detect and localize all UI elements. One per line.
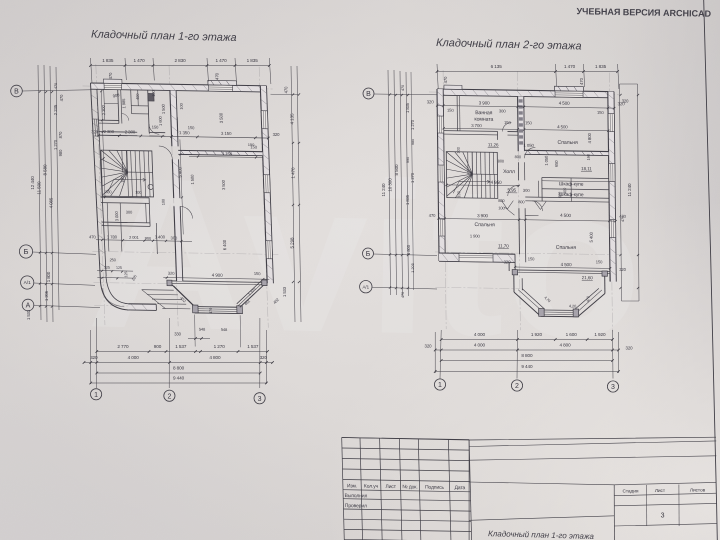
svg-text:6 400: 6 400 xyxy=(222,239,227,250)
svg-text:1 600: 1 600 xyxy=(158,115,163,126)
svg-text:4 000: 4 000 xyxy=(128,355,140,360)
svg-text:320: 320 xyxy=(622,99,629,104)
svg-text:470: 470 xyxy=(108,72,113,79)
svg-text:150: 150 xyxy=(528,256,535,261)
svg-text:470: 470 xyxy=(579,77,584,84)
svg-text:Спальня: Спальня xyxy=(556,245,577,251)
svg-text:990: 990 xyxy=(405,156,410,163)
svg-text:548: 548 xyxy=(221,327,228,332)
svg-text:3: 3 xyxy=(661,513,665,520)
svg-text:3 700: 3 700 xyxy=(471,123,482,128)
svg-text:1 920: 1 920 xyxy=(531,332,543,337)
svg-text:150: 150 xyxy=(597,110,604,115)
svg-text:комната: комната xyxy=(474,117,493,123)
svg-text:3 150: 3 150 xyxy=(221,131,232,136)
svg-text:Б: Б xyxy=(366,251,371,258)
svg-text:5 400: 5 400 xyxy=(177,166,182,177)
svg-text:650: 650 xyxy=(554,160,559,167)
svg-text:1 205: 1 205 xyxy=(410,262,415,272)
svg-text:100: 100 xyxy=(456,146,461,153)
svg-text:1 920: 1 920 xyxy=(594,332,606,337)
svg-text:300: 300 xyxy=(170,235,178,240)
svg-text:800: 800 xyxy=(515,154,522,159)
svg-text:4 500: 4 500 xyxy=(557,124,568,129)
svg-text:125: 125 xyxy=(104,266,110,270)
svg-text:18,11: 18,11 xyxy=(581,166,592,171)
svg-text:100: 100 xyxy=(498,205,505,210)
svg-text:320: 320 xyxy=(168,271,176,276)
svg-text:320: 320 xyxy=(626,346,634,351)
svg-text:Выполнил: Выполнил xyxy=(345,493,368,499)
svg-text:470: 470 xyxy=(400,84,405,91)
svg-text:300: 300 xyxy=(105,189,112,194)
svg-text:548: 548 xyxy=(199,327,206,332)
svg-text:6 135: 6 135 xyxy=(491,64,503,69)
svg-text:Шкаф-купе: Шкаф-купе xyxy=(559,181,584,187)
svg-text:1 835: 1 835 xyxy=(102,58,114,63)
svg-text:1 270: 1 270 xyxy=(214,344,226,349)
svg-text:100: 100 xyxy=(456,190,461,197)
svg-text:320: 320 xyxy=(273,132,281,137)
svg-text:330: 330 xyxy=(174,331,181,336)
svg-text:1 537: 1 537 xyxy=(247,344,259,349)
svg-text:5 298: 5 298 xyxy=(290,237,295,248)
svg-text:470: 470 xyxy=(209,308,213,314)
svg-text:150: 150 xyxy=(188,125,196,130)
svg-text:8 500: 8 500 xyxy=(394,164,399,175)
svg-text:4 800: 4 800 xyxy=(587,132,592,143)
svg-text:9 440: 9 440 xyxy=(173,375,185,380)
svg-text:100: 100 xyxy=(120,175,125,182)
svg-text:Стадия: Стадия xyxy=(622,489,638,495)
svg-text:900: 900 xyxy=(154,344,162,349)
svg-text:№ док.: № док. xyxy=(402,484,417,490)
svg-text:2 001: 2 001 xyxy=(129,235,140,240)
svg-text:2 300: 2 300 xyxy=(101,104,106,115)
svg-text:3 150: 3 150 xyxy=(222,151,233,156)
svg-text:Проверил: Проверил xyxy=(345,503,367,509)
svg-text:160: 160 xyxy=(586,153,591,160)
svg-text:8 800: 8 800 xyxy=(173,366,185,371)
svg-text:125: 125 xyxy=(124,271,128,277)
svg-text:150: 150 xyxy=(504,120,511,125)
svg-text:Лист: Лист xyxy=(385,484,396,490)
svg-text:9 440: 9 440 xyxy=(521,364,533,369)
svg-text:150: 150 xyxy=(596,259,603,264)
svg-text:В: В xyxy=(14,89,19,96)
svg-text:В: В xyxy=(366,91,371,98)
svg-text:2 235: 2 235 xyxy=(53,104,58,115)
svg-text:3: 3 xyxy=(611,384,615,391)
svg-text:12 440: 12 440 xyxy=(30,176,35,190)
svg-text:470: 470 xyxy=(585,295,590,302)
svg-text:4 900: 4 900 xyxy=(212,273,224,278)
svg-text:2: 2 xyxy=(167,393,171,400)
svg-text:Кладочный план 1-го этажа: Кладочный план 1-го этажа xyxy=(488,529,595,540)
svg-text:320: 320 xyxy=(427,99,435,104)
svg-text:1 800: 1 800 xyxy=(46,271,51,282)
svg-text:470: 470 xyxy=(443,76,448,83)
svg-text:4 800: 4 800 xyxy=(559,343,571,348)
svg-text:100: 100 xyxy=(179,102,184,109)
svg-text:1 600: 1 600 xyxy=(566,332,578,337)
svg-text:4 500: 4 500 xyxy=(559,101,571,106)
svg-text:125: 125 xyxy=(116,266,122,270)
svg-text:4 950: 4 950 xyxy=(491,180,503,185)
svg-text:1 800: 1 800 xyxy=(406,244,411,255)
svg-text:470: 470 xyxy=(400,291,405,298)
svg-text:470: 470 xyxy=(59,94,64,101)
svg-text:1 270: 1 270 xyxy=(410,119,415,130)
svg-text:А/1: А/1 xyxy=(24,280,32,286)
svg-text:А/1: А/1 xyxy=(363,284,370,289)
svg-text:1 050: 1 050 xyxy=(523,143,534,148)
svg-text:1 470: 1 470 xyxy=(291,167,296,178)
svg-text:470: 470 xyxy=(620,215,625,222)
svg-text:8 800: 8 800 xyxy=(521,353,533,358)
svg-text:100: 100 xyxy=(160,198,165,205)
svg-text:Б: Б xyxy=(24,247,29,256)
svg-text:1 835: 1 835 xyxy=(405,194,410,205)
svg-text:470: 470 xyxy=(89,234,97,239)
svg-text:150: 150 xyxy=(254,271,262,276)
svg-text:5,95: 5,95 xyxy=(507,188,516,193)
svg-text:300: 300 xyxy=(499,108,506,113)
svg-text:3 000: 3 000 xyxy=(114,211,119,222)
svg-text:1 900: 1 900 xyxy=(470,233,481,238)
svg-text:1 470: 1 470 xyxy=(215,58,227,63)
svg-text:320: 320 xyxy=(91,129,99,134)
svg-text:1 470: 1 470 xyxy=(133,58,145,63)
svg-text:320: 320 xyxy=(504,259,512,264)
svg-text:2: 2 xyxy=(515,383,519,390)
svg-text:Спальня: Спальня xyxy=(475,222,496,228)
svg-text:Лист: Лист xyxy=(655,488,666,494)
svg-text:400: 400 xyxy=(135,93,140,100)
svg-text:150: 150 xyxy=(447,108,454,113)
svg-text:900: 900 xyxy=(145,236,152,241)
svg-text:470: 470 xyxy=(215,72,220,80)
svg-text:470: 470 xyxy=(53,82,58,89)
svg-text:Листов: Листов xyxy=(690,488,706,494)
svg-text:2 830: 2 830 xyxy=(174,58,186,63)
svg-text:4 000: 4 000 xyxy=(474,343,486,348)
svg-text:Холл: Холл xyxy=(503,169,515,175)
svg-text:11,26: 11,26 xyxy=(488,142,499,147)
svg-text:250: 250 xyxy=(109,257,116,262)
svg-text:11 500: 11 500 xyxy=(37,181,42,195)
svg-text:11 240: 11 240 xyxy=(627,183,632,197)
svg-text:Изм.: Изм. xyxy=(347,483,357,489)
svg-text:3 500: 3 500 xyxy=(221,179,226,190)
svg-text:3: 3 xyxy=(258,396,262,403)
svg-text:320: 320 xyxy=(619,267,626,272)
svg-text:2 300: 2 300 xyxy=(125,129,136,134)
svg-text:100: 100 xyxy=(151,89,156,96)
svg-text:4 800: 4 800 xyxy=(209,355,221,360)
svg-text:1: 1 xyxy=(438,382,442,389)
svg-text:1 470: 1 470 xyxy=(564,64,576,69)
svg-text:3 900: 3 900 xyxy=(477,213,489,218)
svg-text:1: 1 xyxy=(94,392,98,399)
svg-text:11,70: 11,70 xyxy=(498,243,509,248)
svg-text:4 135: 4 135 xyxy=(290,113,295,124)
svg-text:11 240: 11 240 xyxy=(381,183,386,197)
svg-text:3 900: 3 900 xyxy=(479,100,491,105)
svg-text:2 770: 2 770 xyxy=(117,344,129,349)
svg-text:870: 870 xyxy=(58,131,63,138)
svg-text:Ванная: Ванная xyxy=(475,110,493,116)
svg-text:1 400: 1 400 xyxy=(155,234,166,239)
svg-text:300: 300 xyxy=(126,209,133,214)
svg-text:400: 400 xyxy=(562,187,567,194)
svg-text:1 533: 1 533 xyxy=(282,286,287,297)
svg-text:1 500: 1 500 xyxy=(190,174,195,185)
svg-text:1 835: 1 835 xyxy=(595,64,607,69)
svg-text:1 350: 1 350 xyxy=(179,130,190,135)
svg-text:320: 320 xyxy=(90,355,98,360)
svg-text:5 400: 5 400 xyxy=(589,231,594,242)
svg-text:1 835: 1 835 xyxy=(405,102,410,113)
svg-text:1 205: 1 205 xyxy=(44,290,49,301)
svg-text:4 000: 4 000 xyxy=(474,332,486,337)
svg-text:1 500: 1 500 xyxy=(161,103,166,114)
svg-text:Подпись: Подпись xyxy=(425,485,445,491)
svg-text:1 270: 1 270 xyxy=(410,172,415,183)
svg-text:1 533: 1 533 xyxy=(26,309,31,320)
svg-text:470: 470 xyxy=(284,86,289,93)
svg-text:21,60: 21,60 xyxy=(582,275,594,280)
svg-text:Дата: Дата xyxy=(455,485,466,491)
svg-text:Спальня: Спальня xyxy=(558,140,579,146)
svg-text:4 085: 4 085 xyxy=(49,197,54,208)
svg-text:4 500: 4 500 xyxy=(560,213,572,218)
svg-text:150: 150 xyxy=(525,120,532,125)
svg-text:1 537: 1 537 xyxy=(175,344,187,349)
svg-text:8 580: 8 580 xyxy=(43,164,48,175)
svg-text:300: 300 xyxy=(523,188,530,193)
svg-text:800: 800 xyxy=(498,198,505,203)
svg-text:А: А xyxy=(26,303,31,310)
svg-text:1 780: 1 780 xyxy=(107,234,118,239)
svg-text:1 050: 1 050 xyxy=(544,155,549,166)
svg-text:10 300: 10 300 xyxy=(388,178,393,192)
svg-text:320: 320 xyxy=(425,344,433,349)
svg-text:1 985: 1 985 xyxy=(121,98,126,109)
svg-text:980: 980 xyxy=(410,138,415,145)
svg-text:1 270: 1 270 xyxy=(53,139,58,150)
svg-text:4 500: 4 500 xyxy=(561,262,573,267)
svg-text:800: 800 xyxy=(498,158,505,163)
svg-text:470: 470 xyxy=(429,213,436,218)
svg-text:1 835: 1 835 xyxy=(247,58,259,63)
svg-text:Кол.уч: Кол.уч xyxy=(364,484,379,490)
svg-text:100: 100 xyxy=(135,190,142,195)
svg-text:2 300: 2 300 xyxy=(104,129,115,134)
svg-text:980: 980 xyxy=(58,149,63,156)
svg-text:4,20: 4,20 xyxy=(569,303,577,308)
svg-text:800: 800 xyxy=(518,199,525,204)
svg-text:3 500: 3 500 xyxy=(218,112,223,123)
svg-text:150: 150 xyxy=(248,142,255,147)
